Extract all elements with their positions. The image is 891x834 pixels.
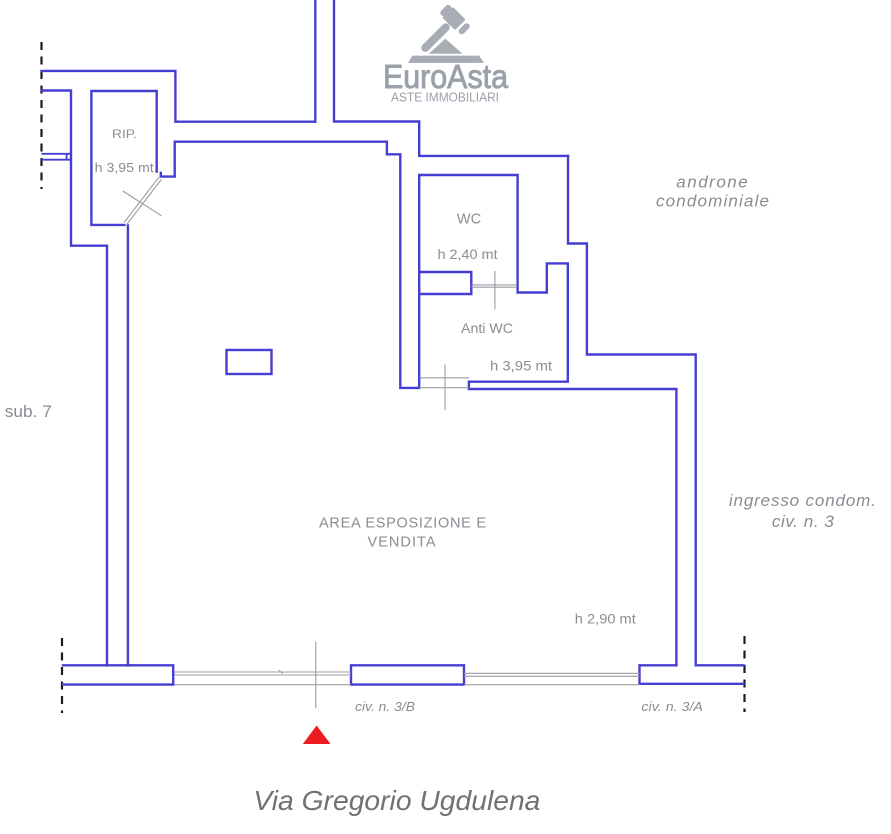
svg-text:h 2,40 mt: h 2,40 mt xyxy=(438,247,498,262)
svg-text:civ. n. 3/A: civ. n. 3/A xyxy=(641,699,703,714)
svg-text:civ. n. 3: civ. n. 3 xyxy=(772,512,835,531)
svg-text:condominiale: condominiale xyxy=(656,192,769,211)
svg-text:h 2,90 mt: h 2,90 mt xyxy=(575,612,636,627)
svg-text:ingresso condom.: ingresso condom. xyxy=(729,491,876,510)
svg-text:ASTE IMMOBILIARI: ASTE IMMOBILIARI xyxy=(391,90,499,105)
svg-text:civ. n. 3/B: civ. n. 3/B xyxy=(355,699,415,714)
svg-text:WC: WC xyxy=(457,211,482,228)
svg-text:Anti WC: Anti WC xyxy=(461,320,513,336)
svg-text:h 3,95 mt: h 3,95 mt xyxy=(95,160,154,175)
svg-text:sub. 7: sub. 7 xyxy=(5,403,52,421)
svg-text:AREA ESPOSIZIONE E: AREA ESPOSIZIONE E xyxy=(319,516,486,532)
svg-text:h 3,95 mt: h 3,95 mt xyxy=(490,359,552,374)
svg-text:Via Gregorio Ugdulena: Via Gregorio Ugdulena xyxy=(253,785,540,816)
svg-text:VENDITA: VENDITA xyxy=(368,535,436,551)
svg-text:RIP.: RIP. xyxy=(112,129,137,141)
